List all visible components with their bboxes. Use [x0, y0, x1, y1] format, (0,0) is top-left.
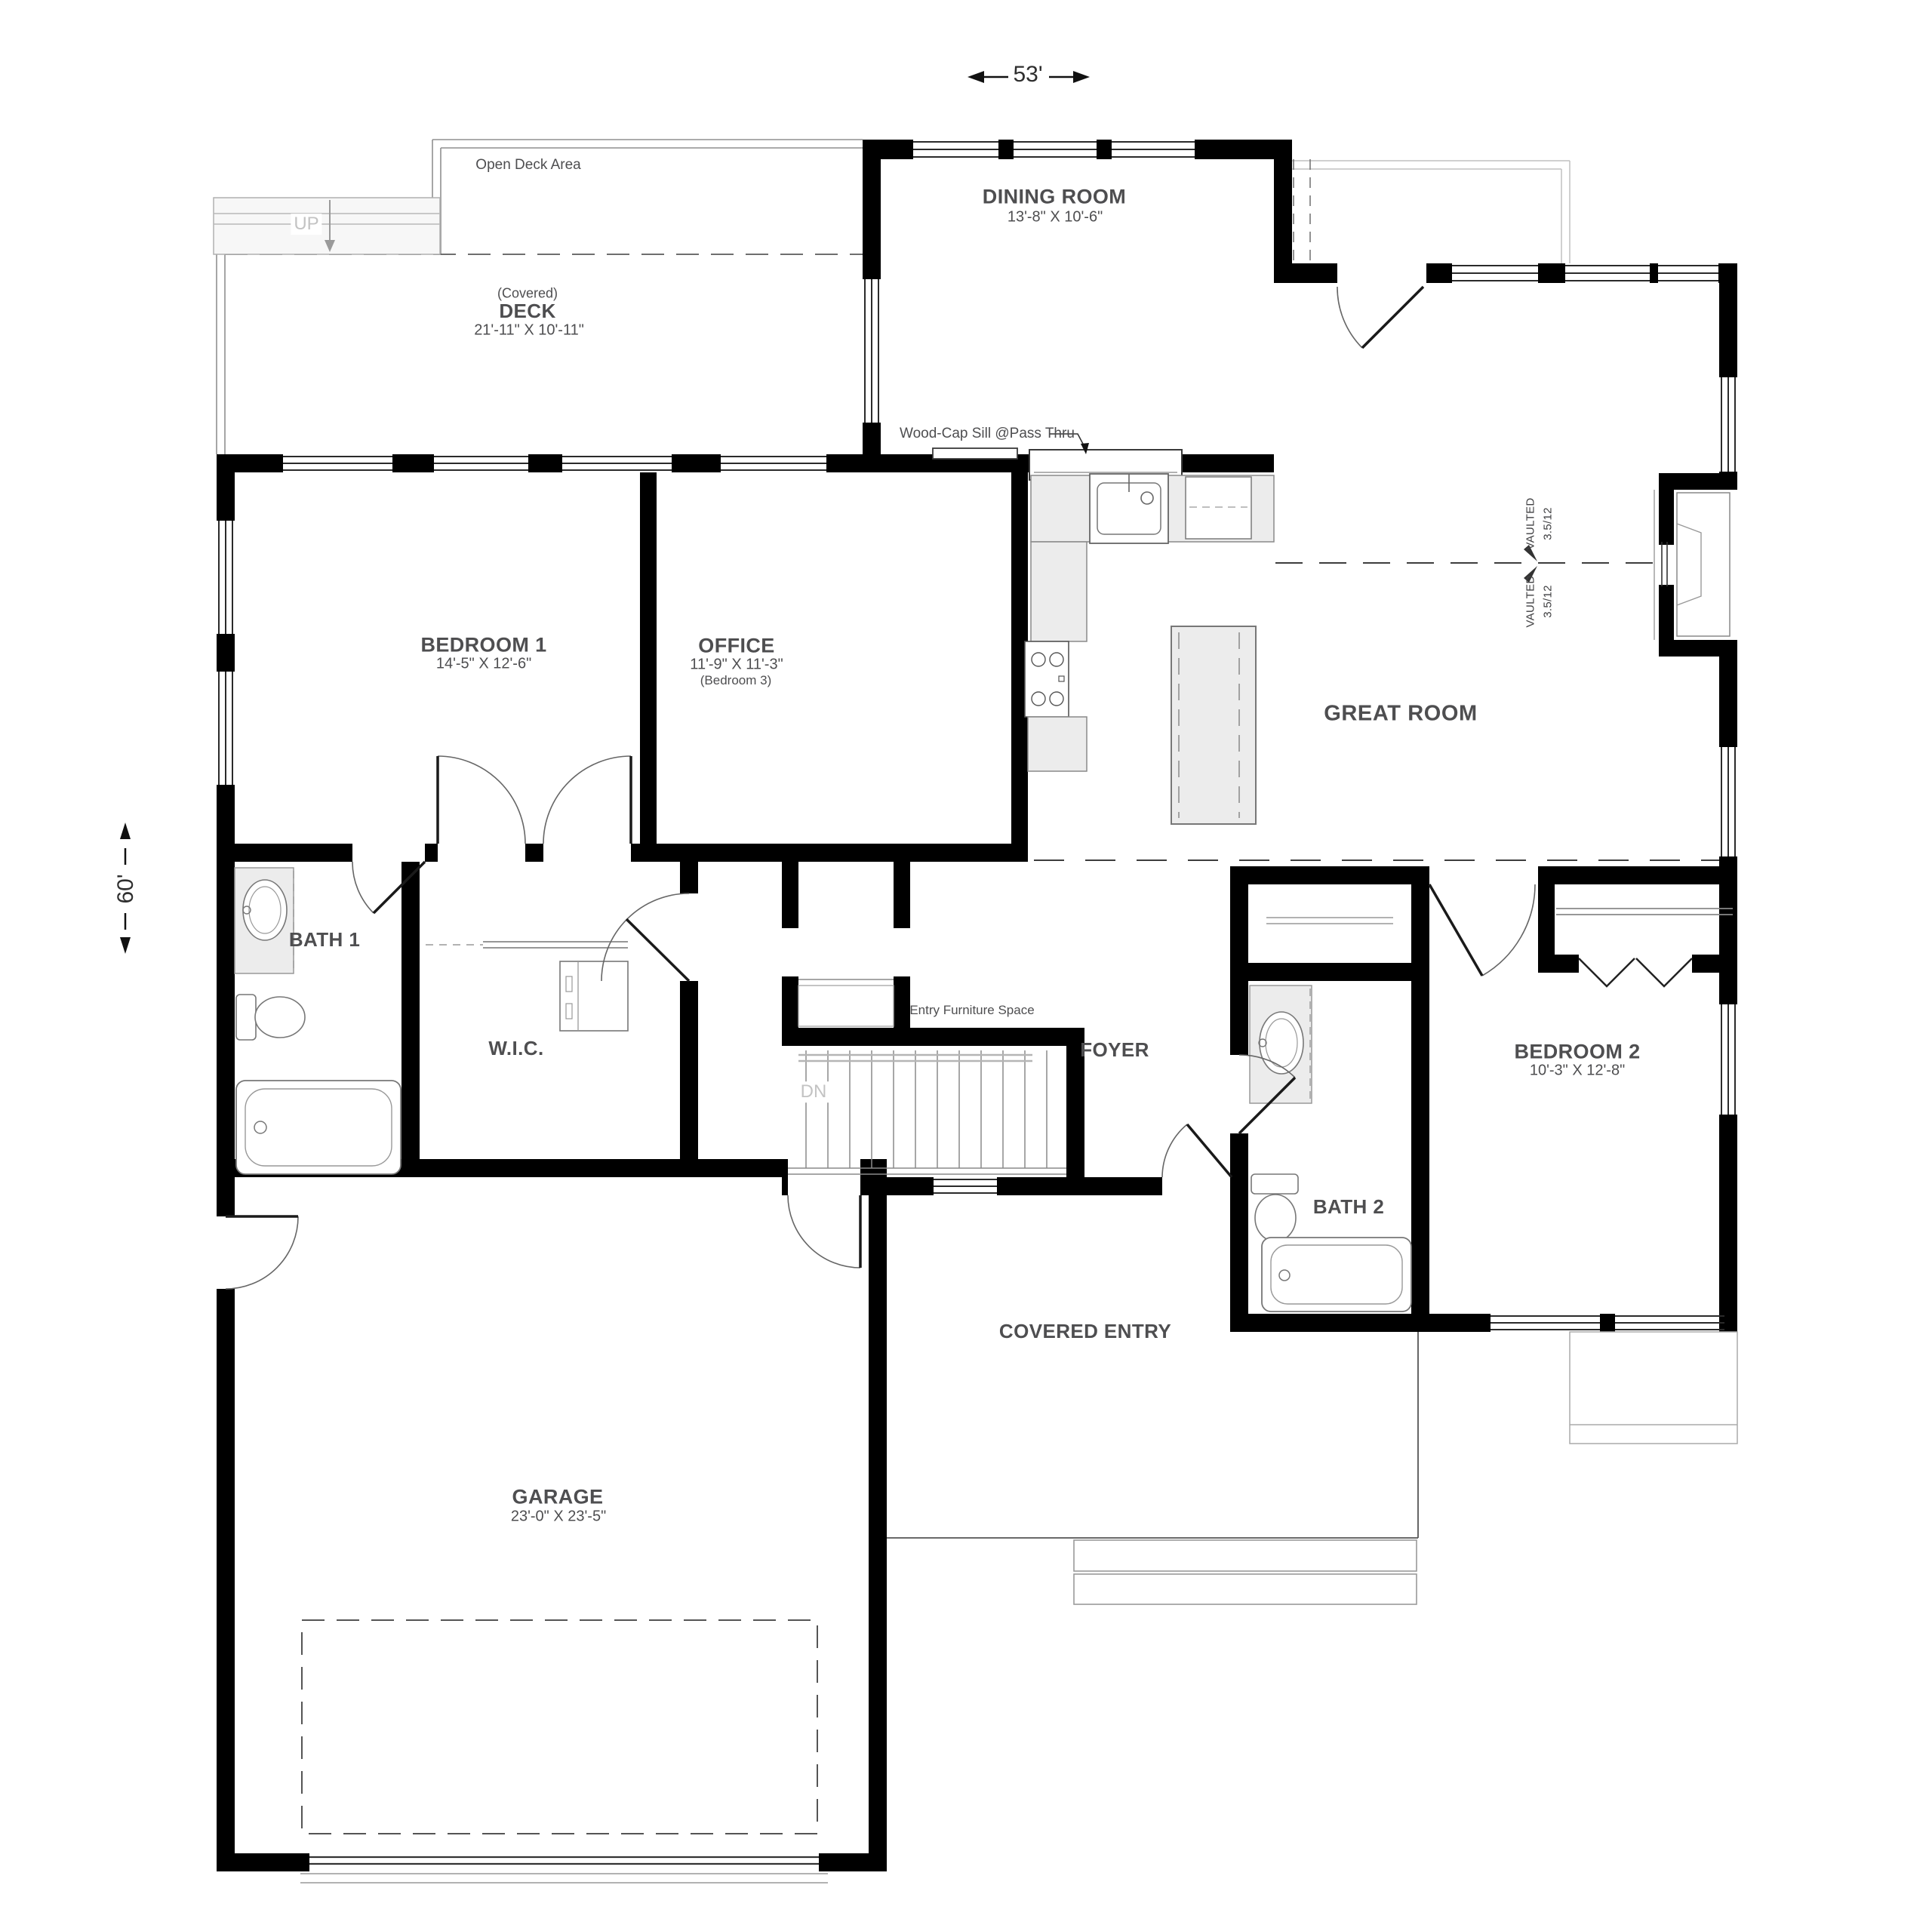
deck-up-stairs [214, 198, 440, 254]
roof-lines [1292, 161, 1570, 263]
vaulted-upper-label: VAULTED 3.5/12 [1523, 497, 1557, 549]
bedroom2-size-label: 10'-3" X 12'-8" [1530, 1062, 1625, 1080]
bath1-toilet [236, 995, 305, 1040]
covered-entry-label: COVERED ENTRY [999, 1321, 1171, 1343]
entry-step [1074, 1574, 1417, 1604]
kitchen-island [1171, 626, 1256, 824]
kitchen [1025, 474, 1274, 824]
dining-room-size-label: 13'-8" X 10'-6" [1008, 209, 1103, 226]
garage-details [300, 1620, 828, 1883]
bedroom1-label: BEDROOM 1 [420, 633, 546, 657]
wic-label: W.I.C. [488, 1038, 543, 1060]
pass-thru-label: Wood-Cap Sill @Pass Thru [900, 426, 1075, 442]
vaulted-lower-label: VAULTED 3.5/12 [1523, 575, 1557, 627]
floor-plan-svg [0, 0, 1932, 1925]
entry-step [1074, 1540, 1417, 1571]
range [1025, 641, 1069, 717]
bath2-toilet [1251, 1174, 1298, 1241]
entry-niche [798, 979, 894, 1026]
garage-label: GARAGE [512, 1485, 604, 1508]
bath1-tub [236, 1081, 401, 1174]
rear-patio [1570, 1332, 1737, 1444]
floor-plan: 53' 60' Open Deck Area UP (Covered) DECK… [0, 0, 1932, 1925]
dimension-width-label: 53' [1013, 62, 1042, 88]
dresser [560, 961, 628, 1031]
dim-arrow-down-icon [120, 937, 131, 954]
great-room-label: GREAT ROOM [1324, 701, 1478, 726]
bath2-label: BATH 2 [1313, 1196, 1384, 1219]
foyer-label: FOYER [1080, 1039, 1149, 1062]
office-alt-label: (Bedroom 3) [700, 673, 771, 688]
bath1-fixtures [235, 868, 401, 1174]
covered-entry-outline [887, 1332, 1418, 1604]
bath2-sink [1259, 1012, 1303, 1074]
deck-label: DECK [499, 300, 555, 323]
bath1-sink [243, 880, 287, 940]
up-label: UP [291, 214, 321, 235]
bath2-fixtures [1250, 986, 1411, 1312]
bedroom1-size-label: 14'-5" X 12'-6" [436, 656, 531, 673]
office-size-label: 11'-9" X 11'-3" [690, 657, 783, 674]
linen-shelves [1266, 918, 1393, 924]
fireplace [1654, 473, 1737, 657]
entry-furniture-label: Entry Furniture Space [909, 1003, 1034, 1018]
kitchen-sink [1090, 474, 1168, 543]
dim-arrow-right-icon [1073, 71, 1090, 83]
dn-label: DN [798, 1081, 830, 1102]
dimension-height-label: 60' [113, 874, 140, 903]
open-deck-label: Open Deck Area [475, 157, 580, 174]
bifold-doors [1579, 958, 1692, 986]
vaulted-text: VAULTED [1524, 575, 1537, 627]
office-label: OFFICE [698, 634, 774, 657]
windows [219, 142, 1735, 1330]
bedroom2-closet-rod [1556, 909, 1733, 915]
bath1-label: BATH 1 [289, 929, 360, 952]
dim-arrow-left-icon [968, 71, 984, 83]
vaulted-text: VAULTED [1524, 497, 1537, 549]
vaulted-pitch: 3.5/12 [1541, 585, 1554, 618]
deck-size-label: 21'-11" X 10'-11" [474, 322, 584, 340]
dining-room-label: DINING ROOM [983, 185, 1126, 208]
bath2-tub [1262, 1238, 1411, 1312]
vaulted-pitch: 3.5/12 [1541, 507, 1554, 540]
dim-arrow-up-icon [120, 823, 131, 839]
wic-fixtures [426, 942, 628, 1031]
garage-size-label: 23'-0" X 23'-5" [511, 1508, 606, 1526]
garage-clearance [302, 1620, 817, 1834]
stairs [788, 1050, 1066, 1174]
bedroom2-label: BEDROOM 2 [1514, 1040, 1640, 1063]
refrigerator [1186, 477, 1251, 539]
